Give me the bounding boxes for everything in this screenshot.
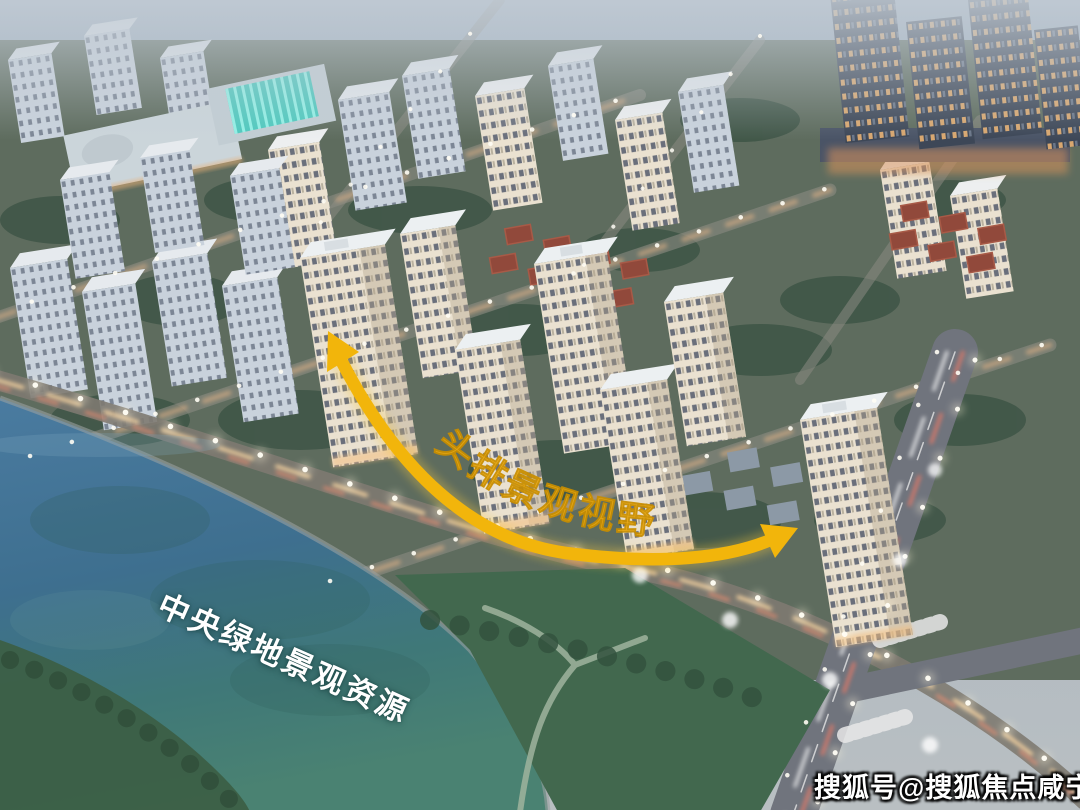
dusk-cityscape-scene: 头排景观视野 — [0, 0, 1080, 810]
distance-haze — [0, 0, 1080, 140]
aerial-render-image: 头排景观视野 中央绿地景观资源 搜狐号@搜狐焦点咸宁站 — [0, 0, 1080, 810]
